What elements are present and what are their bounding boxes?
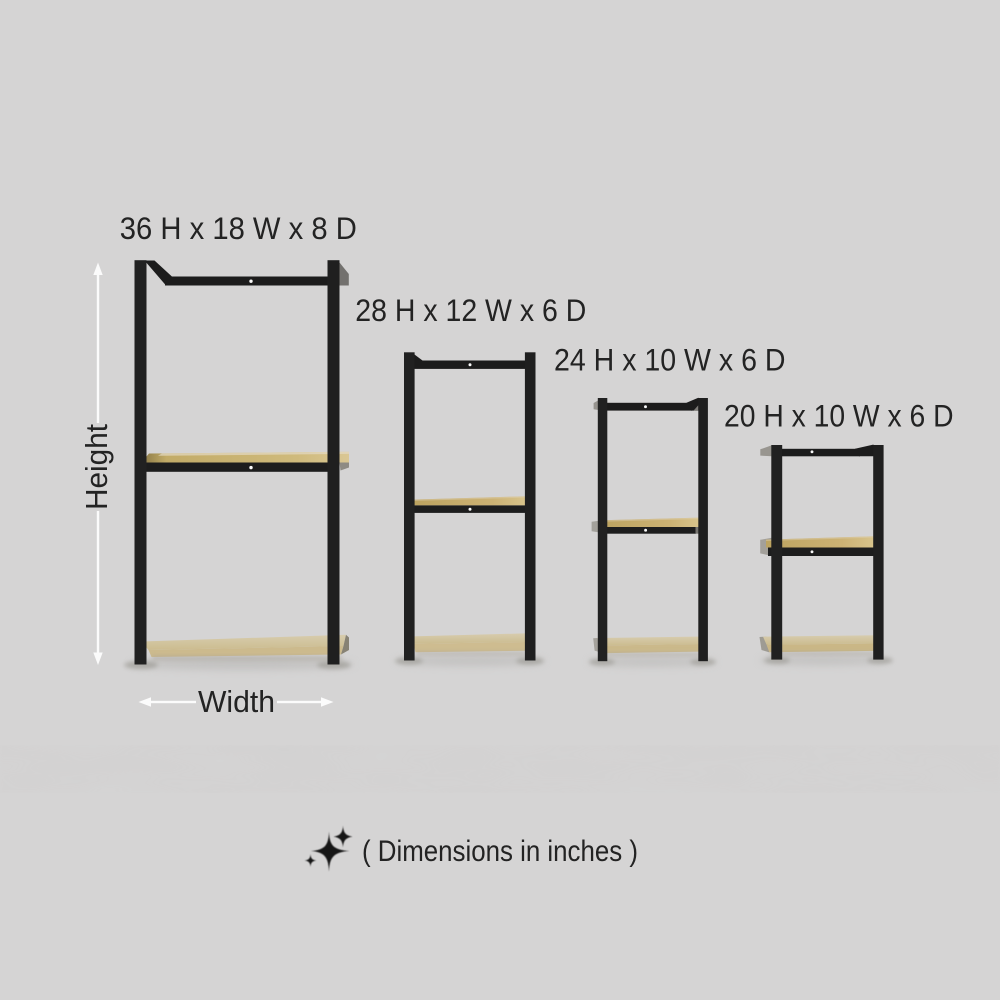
svg-text:24 H x 10 W x 6 D: 24 H x 10 W x 6 D	[554, 341, 786, 377]
svg-text:36 H x 18 W x 8 D: 36 H x 18 W x 8 D	[120, 210, 357, 246]
svg-text:( Dimensions in inches ): ( Dimensions in inches )	[362, 835, 638, 868]
svg-text:28 H x 12 W x 6 D: 28 H x 12 W x 6 D	[355, 292, 586, 328]
svg-text:Height: Height	[79, 424, 114, 510]
svg-text:20 H x 10 W x 6 D: 20 H x 10 W x 6 D	[724, 397, 954, 433]
svg-text:Width: Width	[198, 684, 275, 719]
